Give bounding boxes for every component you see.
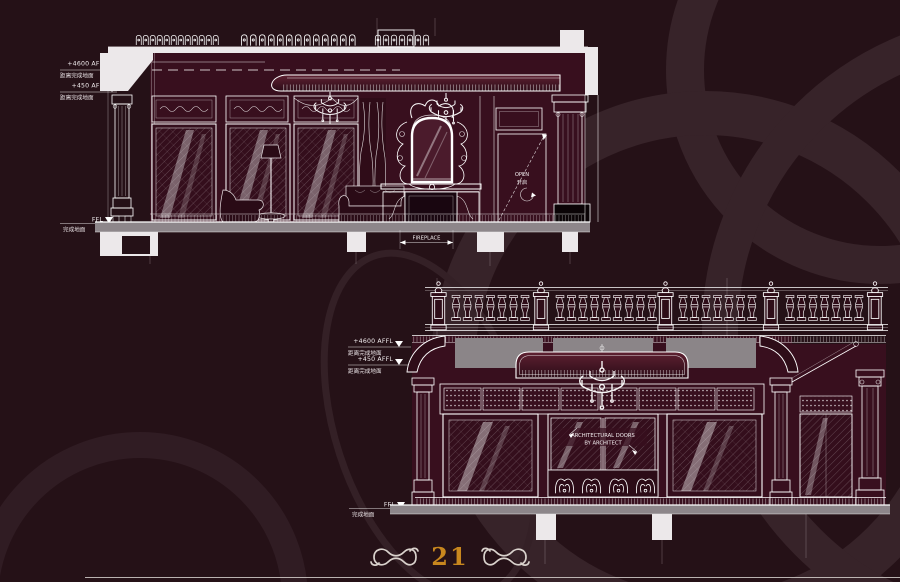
lower-elevation-drawing: +4600 AFFL 距离完成地面 +450 AFFL 距离完成地面 FFL 完… — [345, 278, 900, 568]
balustrade-post — [431, 282, 446, 330]
flourish-icon — [481, 543, 531, 571]
flourish-icon — [369, 543, 419, 571]
balustrade-post — [867, 282, 882, 330]
level-marker-icon — [395, 341, 403, 347]
balustrade-post — [763, 282, 778, 330]
balustrade-post — [658, 282, 673, 330]
glazing-bay-right — [667, 414, 762, 497]
baluster-group — [452, 296, 864, 321]
door-note-line1: ARCHITECTURAL DOORS — [571, 433, 635, 439]
ffl-note: 完成地面 — [63, 226, 86, 234]
roof-balustrade — [425, 282, 888, 331]
page-number: 21 — [431, 545, 468, 569]
level-marker-icon — [395, 359, 403, 365]
level-top-note: 距离完成地面 — [60, 72, 94, 80]
footer: 21 — [0, 540, 900, 574]
footer-rule — [85, 577, 900, 578]
base-band — [415, 498, 886, 505]
foundation-piers — [536, 514, 672, 540]
level-top-label: +4600 AFFL — [353, 338, 393, 345]
level-mid-note: 距离完成地面 — [60, 94, 94, 102]
floor-slab — [95, 222, 590, 232]
upper-cornice — [272, 75, 560, 91]
baseboard — [150, 214, 585, 222]
open-label: OPEN — [515, 172, 529, 178]
level-mid-label: +450 AFFL — [357, 356, 393, 363]
upper-elevation-drawing: +4600 AFFL 距离完成地面 +450 AFFL 距离完成地面 FFL 完… — [55, 18, 600, 276]
glazing-bay-left — [443, 414, 538, 497]
fireplace-dimension: FIREPLACE — [400, 230, 453, 249]
fireplace-label: FIREPLACE — [413, 236, 441, 242]
center-door-assembly: ARCHITECTURAL DOORS BY ARCHITECT — [548, 414, 658, 497]
glazing-wing — [800, 414, 852, 497]
upper-left-wall-section — [100, 53, 153, 222]
ffl-note: 完成地面 — [352, 511, 375, 519]
drawing-sheet: +4600 AFFL 距离完成地面 +450 AFFL 距离完成地面 FFL 完… — [0, 0, 900, 582]
floor-slab — [390, 505, 890, 514]
door-note-line2: BY ARCHITECT — [584, 441, 622, 447]
balustrade-post — [533, 282, 548, 330]
door-scroll-band — [548, 470, 658, 497]
level-mid-note: 距离完成地面 — [348, 367, 382, 375]
foundation-piers — [100, 232, 578, 256]
open-label-cn: 开启 — [517, 178, 527, 186]
